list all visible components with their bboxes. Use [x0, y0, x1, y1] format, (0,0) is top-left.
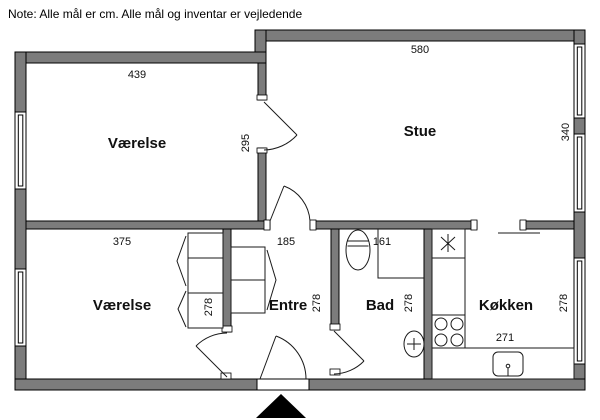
dim-bad-width: 161: [373, 236, 391, 248]
dim-koekken-width: 271: [496, 332, 514, 344]
room-label-stue: Stue: [404, 123, 437, 140]
wall-vaerelse-stue-upper: [258, 63, 266, 100]
dim-vaerelse-bottom-width: 375: [113, 236, 131, 248]
window-vaerelse-top-left: [15, 112, 26, 189]
wall-outer-top-stue: [255, 30, 585, 41]
dim-stue-depth: 340: [560, 123, 572, 141]
wall-vaerelse-stue-lower: [258, 148, 266, 221]
dim-vaerelse-top-depth: 295: [240, 134, 252, 152]
dim-stue-width: 580: [411, 44, 429, 56]
room-label-vaerelse-bottom: Værelse: [93, 297, 151, 314]
room-label-bad: Bad: [366, 297, 394, 314]
dim-bad-depth: 278: [403, 294, 415, 312]
floor-plan-page: Note: Alle mål er cm. Alle mål og invent…: [0, 0, 600, 420]
dim-koekken-depth: 278: [558, 294, 570, 312]
wall-entre-bad: [331, 229, 339, 330]
hand-basin-icon: [404, 331, 424, 357]
dim-vaerelse-bottom-depth: 278: [203, 298, 215, 316]
window-koekken-right: [574, 258, 585, 364]
toilet-icon: [346, 230, 370, 270]
window-vaerelse-bottom-left: [15, 269, 26, 346]
room-label-koekken: Køkken: [479, 297, 533, 314]
floor-plan: Note: Alle mål er cm. Alle mål og invent…: [0, 0, 600, 420]
wall-divider-right: [520, 221, 574, 229]
wall-outer-top-vaerelse: [15, 52, 266, 63]
kitchen-sink-icon: [493, 352, 523, 376]
dim-entre-depth: 278: [311, 294, 323, 312]
dim-vaerelse-top-width: 439: [128, 69, 146, 81]
wall-bad-koekken: [424, 229, 432, 379]
wall-divider-mid: [310, 221, 477, 229]
window-stue-right-upper: [574, 44, 585, 118]
room-label-entre: Entre: [269, 297, 307, 314]
room-label-vaerelse-top: Værelse: [108, 135, 166, 152]
wall-vaerelse2-entre: [223, 229, 231, 332]
note-text: Note: Alle mål er cm. Alle mål og invent…: [8, 7, 302, 21]
dim-entre-width: 185: [277, 236, 295, 248]
wall-divider-left: [26, 221, 270, 229]
window-stue-right-lower: [574, 134, 585, 212]
